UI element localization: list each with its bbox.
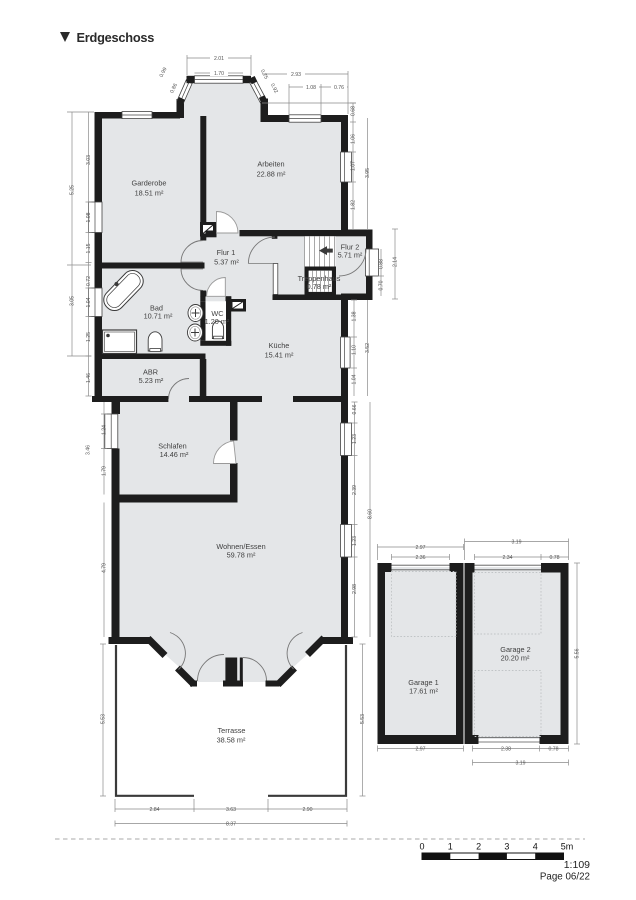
svg-text:5m: 5m [561, 842, 574, 852]
svg-text:1.04: 1.04 [352, 374, 358, 384]
svg-text:22.88 m²: 22.88 m² [257, 170, 286, 179]
svg-text:0.78: 0.78 [548, 747, 558, 753]
svg-text:2.34: 2.34 [502, 555, 512, 561]
svg-text:1.08: 1.08 [86, 212, 92, 222]
svg-text:14.46 m²: 14.46 m² [160, 450, 189, 459]
svg-text:1.82: 1.82 [351, 200, 357, 210]
svg-text:2.38: 2.38 [501, 747, 511, 753]
svg-text:1.79: 1.79 [102, 466, 108, 476]
svg-text:1.24: 1.24 [102, 425, 108, 435]
svg-text:1.08: 1.08 [306, 85, 316, 91]
svg-text:4.79: 4.79 [102, 563, 108, 573]
svg-text:2: 2 [476, 842, 481, 852]
svg-text:3.19: 3.19 [515, 761, 525, 767]
svg-text:5.53: 5.53 [101, 714, 107, 724]
svg-text:10.71 m²: 10.71 m² [144, 312, 173, 321]
svg-text:2.36: 2.36 [415, 555, 425, 561]
svg-text:3: 3 [504, 842, 509, 852]
svg-text:1.07: 1.07 [351, 161, 357, 171]
svg-text:3.63: 3.63 [226, 807, 236, 813]
svg-text:3.03: 3.03 [86, 155, 92, 165]
svg-text:Garderobe: Garderobe [132, 179, 167, 188]
svg-text:5.53: 5.53 [360, 714, 366, 724]
svg-text:3.95: 3.95 [365, 168, 371, 178]
svg-text:Page 06/22: Page 06/22 [540, 872, 590, 883]
svg-text:3.19: 3.19 [511, 540, 521, 546]
svg-text:2.90: 2.90 [302, 807, 312, 813]
svg-text:0.86: 0.86 [169, 83, 179, 95]
svg-text:Arbeiten: Arbeiten [257, 160, 284, 169]
svg-text:0.76: 0.76 [334, 85, 344, 91]
svg-text:8.60: 8.60 [368, 509, 374, 519]
svg-text:1.46: 1.46 [86, 373, 92, 383]
svg-text:38.58 m²: 38.58 m² [217, 736, 246, 745]
svg-text:0.70: 0.70 [379, 280, 385, 290]
svg-text:5.71 m²: 5.71 m² [338, 251, 363, 260]
svg-text:1.23: 1.23 [352, 434, 358, 444]
svg-text:2.97: 2.97 [415, 545, 425, 551]
svg-text:1.06: 1.06 [351, 134, 357, 144]
svg-text:1.20 m²: 1.20 m² [205, 317, 230, 326]
svg-text:18.51 m²: 18.51 m² [135, 189, 164, 198]
svg-text:2.84: 2.84 [149, 807, 159, 813]
svg-text:3.52: 3.52 [365, 343, 371, 353]
svg-text:0.66: 0.66 [352, 404, 358, 414]
svg-text:0.75: 0.75 [259, 69, 269, 81]
svg-text:Terrasse: Terrasse [218, 726, 246, 735]
svg-text:17.61 m²: 17.61 m² [409, 687, 438, 696]
svg-text:1.10: 1.10 [352, 345, 358, 355]
svg-text:15.41 m²: 15.41 m² [265, 351, 294, 360]
svg-text:2.39: 2.39 [352, 485, 358, 495]
svg-text:4: 4 [533, 842, 538, 852]
svg-text:3.05: 3.05 [70, 296, 76, 306]
svg-text:5.23 m²: 5.23 m² [139, 376, 164, 385]
svg-text:5.56: 5.56 [575, 648, 581, 658]
svg-text:1.25: 1.25 [86, 332, 92, 342]
svg-text:1.70: 1.70 [214, 71, 224, 77]
svg-text:0.72: 0.72 [86, 276, 92, 286]
svg-text:1: 1 [448, 842, 453, 852]
svg-text:1.38: 1.38 [352, 311, 358, 321]
svg-text:0.68: 0.68 [351, 106, 357, 116]
svg-text:0.92: 0.92 [269, 83, 279, 95]
svg-text:3.46: 3.46 [86, 445, 92, 455]
svg-text:2.97: 2.97 [415, 747, 425, 753]
svg-text:2.93: 2.93 [291, 72, 301, 78]
svg-text:1.15: 1.15 [86, 243, 92, 253]
svg-text:20.20 m²: 20.20 m² [501, 654, 530, 663]
svg-text:Küche: Küche [269, 341, 290, 350]
svg-text:0.78 m²: 0.78 m² [307, 282, 332, 291]
svg-text:1.23: 1.23 [352, 536, 358, 546]
svg-text:8.37: 8.37 [226, 822, 236, 828]
svg-text:0.88: 0.88 [379, 259, 385, 269]
svg-text:0: 0 [419, 842, 424, 852]
svg-text:5.25: 5.25 [70, 185, 76, 195]
svg-text:2.14: 2.14 [393, 257, 399, 267]
svg-text:1.04: 1.04 [86, 297, 92, 307]
svg-text:0.99: 0.99 [159, 67, 169, 79]
svg-text:5.37 m²: 5.37 m² [214, 258, 239, 267]
svg-text:0.78: 0.78 [549, 555, 559, 561]
svg-text:59.78 m²: 59.78 m² [227, 551, 256, 560]
svg-text:2.01: 2.01 [214, 56, 224, 62]
svg-text:1:109: 1:109 [564, 859, 590, 871]
svg-text:2.98: 2.98 [352, 584, 358, 594]
svg-text:Flur 1: Flur 1 [217, 248, 236, 257]
